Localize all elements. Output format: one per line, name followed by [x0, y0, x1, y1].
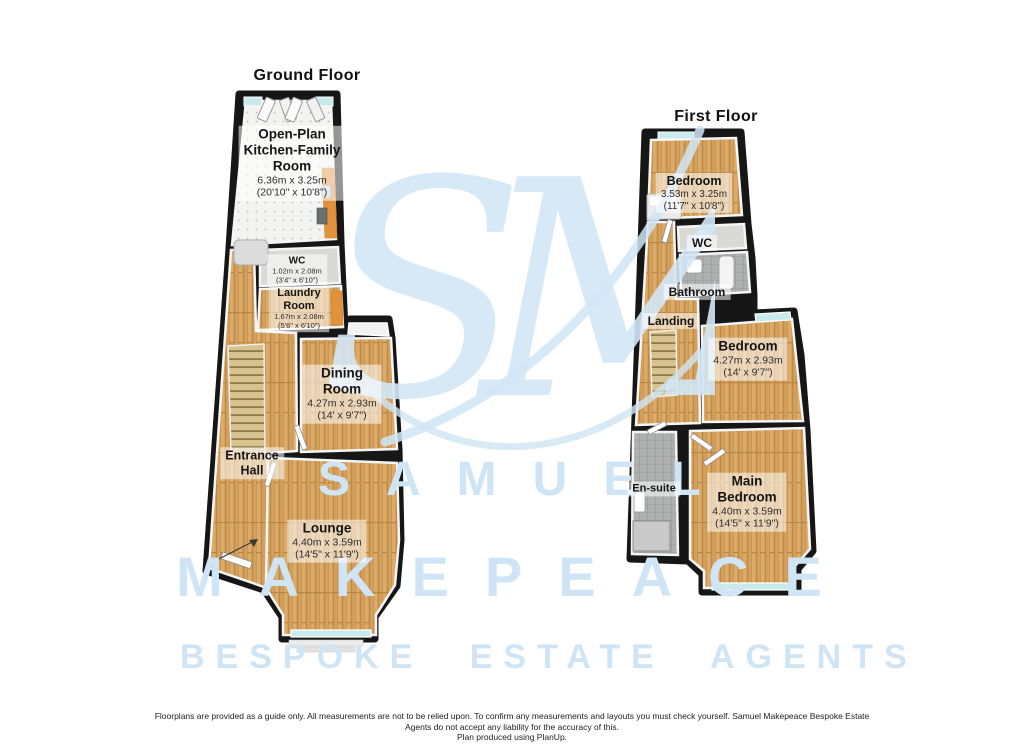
- bedroom2-label: Bedroom 4.27m x 2.93m (14' x 9'7"): [708, 338, 787, 381]
- bedroom1-label: Bedroom 3.53m x 3.25m (11'7" x 10'8"): [656, 173, 732, 213]
- bathroom-label: Bathroom: [664, 284, 731, 300]
- room-name: Laundry: [274, 287, 324, 300]
- kitchen-label: Open-Plan Kitchen-Family Room 6.36m x 3.…: [239, 126, 346, 201]
- lounge-bay-window: [291, 630, 371, 637]
- lounge-step: [297, 647, 355, 652]
- room-name: Room: [307, 382, 376, 398]
- bathroom-sink: [686, 259, 702, 273]
- room-name: Dining: [307, 366, 376, 382]
- floorplan-page: SM SAMUEL MAKEPEACE BESPOKE ESTATE AGENT…: [0, 0, 1024, 745]
- dining-room-label: Dining Room 4.27m x 2.93m (14' x 9'7"): [302, 365, 381, 424]
- room-name: Bedroom: [712, 490, 781, 506]
- kitchen-sofa: [234, 240, 268, 265]
- kitchen-appliance: [317, 208, 327, 224]
- room-dimensions-imperial: (3'4" x 6'10"): [272, 276, 322, 285]
- landing-label: Landing: [643, 313, 700, 329]
- room-name: Landing: [648, 314, 695, 328]
- room-name: Entrance: [225, 448, 279, 463]
- laundry-label: Laundry Room 1.67m x 2.08m (5'6" x 6'10"…: [269, 286, 329, 332]
- disclaimer-footer: Floorplans are provided as a guide only.…: [0, 711, 1024, 743]
- disclaimer-line: Floorplans are provided as a guide only.…: [0, 711, 1024, 722]
- room-name: Room: [244, 159, 341, 175]
- room-dimensions-metric: 4.27m x 2.93m: [307, 398, 376, 410]
- main-bedroom-label: Main Bedroom 4.40m x 3.59m (14'5" x 11'9…: [707, 473, 786, 532]
- room-dimensions-imperial: (14'5" x 11'9"): [712, 518, 781, 530]
- room-name: Kitchen-Family: [244, 143, 341, 159]
- first-floor-title: First Floor: [674, 108, 758, 126]
- main-bedroom-bay-window: [712, 583, 790, 590]
- room-dimensions-metric: 3.53m x 3.25m: [661, 189, 727, 201]
- room-dimensions-imperial: (5'6" x 6'10"): [274, 322, 324, 331]
- room-name: Room: [274, 300, 324, 313]
- room-name: En-suite: [632, 483, 675, 496]
- landing-stairs: [650, 330, 677, 397]
- bedroom1-window: [658, 132, 694, 139]
- bedroom2-bay-window: [755, 312, 791, 322]
- room-dimensions-metric: 4.40m x 3.59m: [292, 537, 361, 549]
- wc-first-label: WC: [687, 235, 717, 251]
- ground-floor-title: Ground Floor: [253, 67, 360, 85]
- kitchen-window-left: [244, 97, 262, 106]
- ground-stairs: [228, 344, 265, 454]
- room-name: Bedroom: [713, 339, 782, 355]
- room-name: Lounge: [292, 521, 361, 537]
- lounge-label: Lounge 4.40m x 3.59m (14'5" x 11'9"): [287, 520, 366, 563]
- room-dimensions-imperial: (11'7" x 10'8"): [661, 200, 727, 212]
- room-dimensions-metric: 4.27m x 2.93m: [713, 355, 782, 367]
- floorplans-canvas: [0, 0, 1024, 745]
- lounge-step: [289, 640, 363, 646]
- room-name: Hall: [225, 463, 279, 478]
- dining-bay: [348, 323, 389, 336]
- room-dimensions-imperial: (20'10" x 10'8"): [244, 187, 341, 199]
- ensuite-label: En-suite: [627, 482, 680, 497]
- wc-ground-label: WC 1.02m x 2.08m (3'4" x 6'10"): [267, 254, 327, 285]
- disclaimer-line: Agents do not accept any liability for t…: [0, 722, 1024, 733]
- laundry-counter: [331, 291, 343, 325]
- room-name: Bathroom: [669, 285, 726, 299]
- room-dimensions-metric: 4.40m x 3.59m: [712, 506, 781, 518]
- room-dimensions-imperial: (14' x 9'7"): [307, 410, 376, 422]
- room-name: Main: [712, 474, 781, 490]
- disclaimer-line: Plan produced using PlanUp.: [0, 732, 1024, 743]
- room-name: Open-Plan: [244, 127, 341, 143]
- room-dimensions-imperial: (14'5" x 11'9"): [292, 549, 361, 561]
- room-dimensions-imperial: (14' x 9'7"): [713, 367, 782, 379]
- ensuite-shower-tray: [633, 521, 670, 551]
- room-name: WC: [692, 236, 712, 250]
- entrance-hall-label: Entrance Hall: [220, 447, 284, 479]
- room-name: Bedroom: [661, 174, 727, 189]
- room-dimensions-metric: 6.36m x 3.25m: [244, 175, 341, 187]
